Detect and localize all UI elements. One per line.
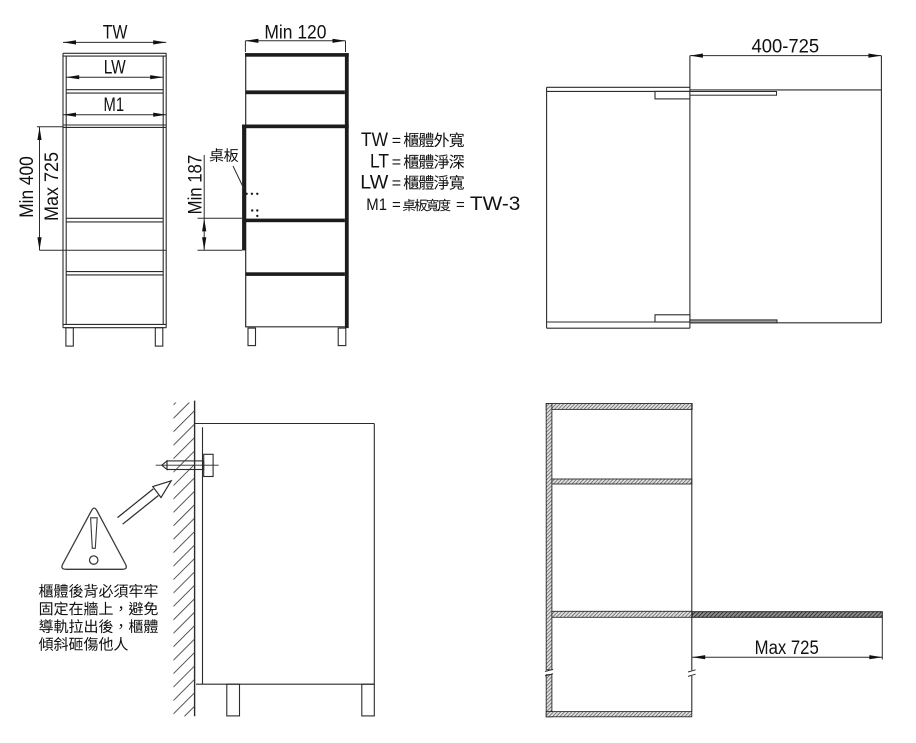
svg-text:Min 187: Min 187: [186, 155, 207, 215]
svg-text:=: =: [456, 197, 465, 214]
svg-text:TW: TW: [361, 130, 388, 151]
svg-text:Max 725: Max 725: [755, 638, 819, 659]
svg-text:=: =: [392, 197, 401, 214]
svg-text:400-725: 400-725: [751, 37, 819, 58]
svg-text:LT: LT: [370, 152, 389, 173]
svg-text:TW-3: TW-3: [470, 194, 521, 215]
svg-text:Min 400: Min 400: [17, 156, 38, 218]
svg-text:=: =: [392, 175, 401, 192]
svg-text:M1: M1: [366, 195, 387, 214]
svg-text:M1: M1: [104, 95, 125, 116]
svg-text:LW: LW: [104, 57, 126, 78]
svg-text:=: =: [392, 154, 401, 171]
svg-text:Max 725: Max 725: [42, 152, 63, 221]
svg-text:Min 120: Min 120: [264, 22, 326, 43]
svg-text:LW: LW: [360, 173, 388, 194]
svg-text:TW: TW: [103, 22, 128, 43]
svg-text:=: =: [392, 132, 401, 149]
